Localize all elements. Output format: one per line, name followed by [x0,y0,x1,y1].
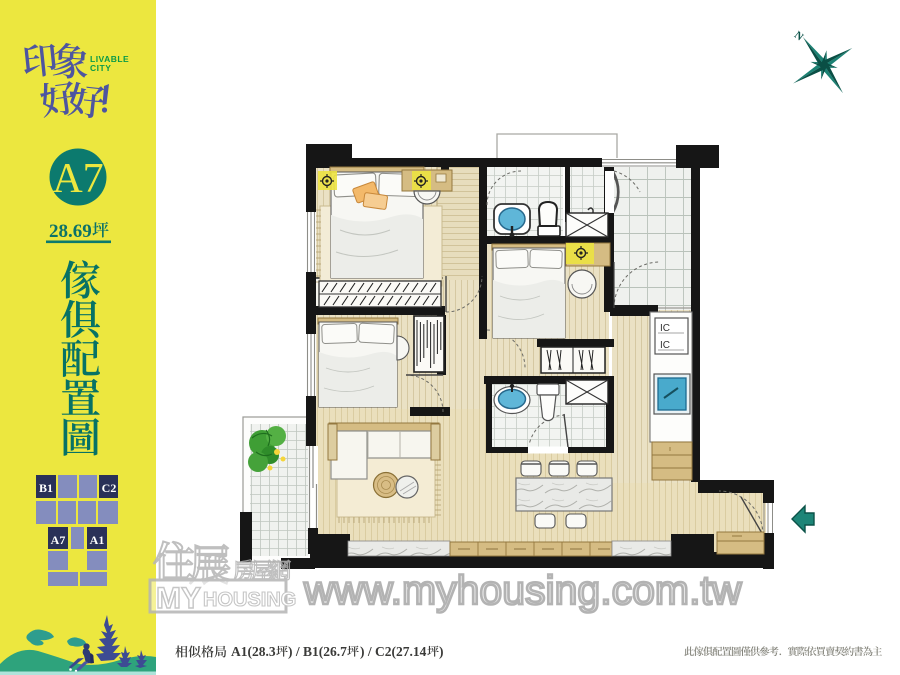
svg-text:) / B1(26.7: ) / B1(26.7 [288,644,347,659]
svg-text:A7: A7 [52,156,103,202]
svg-text:IC: IC [660,340,670,351]
svg-text:A7: A7 [51,533,66,547]
svg-text:): ) [439,644,444,659]
svg-text:CITY: CITY [90,63,111,73]
svg-text:MY: MY [156,582,201,615]
svg-text:HOUSING: HOUSING [203,589,296,611]
svg-text:N: N [792,29,806,43]
svg-text:B1: B1 [39,481,53,495]
svg-text:) / C2(27.14: ) / C2(27.14 [360,644,427,659]
svg-text:A1: A1 [90,533,105,547]
svg-text:www.myhousing.com.tw: www.myhousing.com.tw [303,567,742,613]
svg-text:28.69: 28.69 [49,221,92,242]
svg-text:C2: C2 [102,481,117,495]
svg-text:A1(28.3: A1(28.3 [231,644,276,659]
svg-text:IC: IC [660,323,670,334]
